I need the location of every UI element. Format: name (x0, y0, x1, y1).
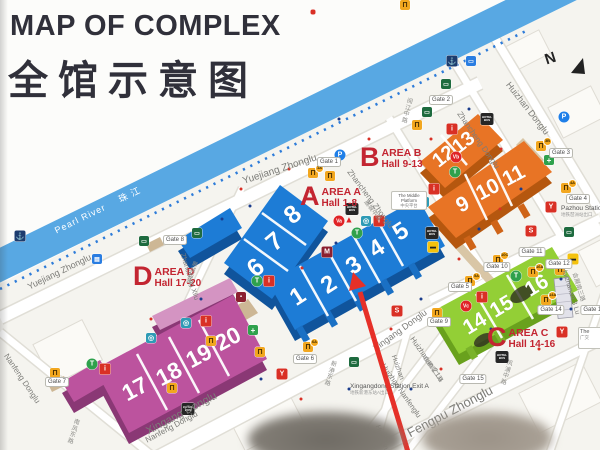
pointer-arrow (0, 0, 600, 450)
complex-map-photo: MAP OF COMPLEX 全馆示意图 Pearl River 珠 江 N A… (0, 0, 600, 450)
photo-edge-vignette (0, 0, 8, 450)
